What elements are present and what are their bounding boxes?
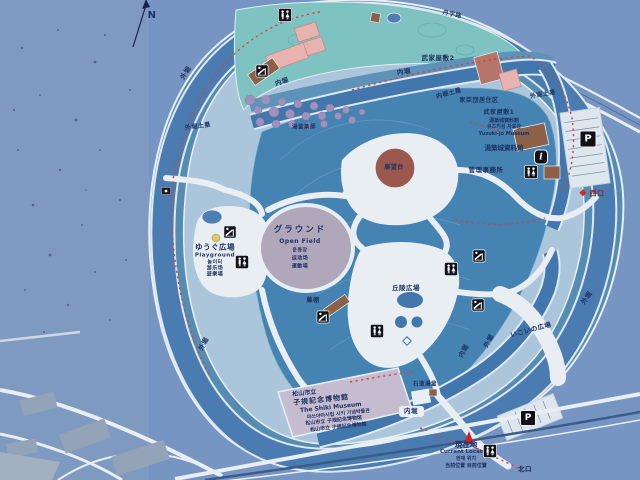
west-exit-label: 西口 (590, 191, 605, 198)
samurai-residence-1-label: 武家屋敷1 (484, 110, 515, 116)
observation-deck-label: 展望台 (384, 165, 404, 171)
playground-en: Playground (195, 253, 235, 259)
yuzuki-museum-en: Yuzuki-jo Museum (479, 131, 530, 137)
open-field-ja: グラウンド (274, 226, 327, 235)
slide-icon (473, 250, 486, 263)
gate-icon (161, 187, 171, 195)
toilet-icon (444, 262, 458, 276)
open-field-zh-tw: 運動場 (292, 265, 309, 270)
slide-icon (224, 226, 237, 239)
slide-icon (472, 299, 485, 312)
admin-office-label: 管理事務所 (469, 167, 504, 174)
samurai-residence-2-label: 武家屋敷2 (421, 55, 454, 62)
playground-zh-tw: 遊樂場 (207, 273, 224, 278)
toilet-icon (524, 165, 538, 179)
compass-n-label: N (148, 11, 157, 21)
yugama-yakushi-label: 湯釜薬師 (292, 125, 316, 131)
info-icon: i (534, 150, 548, 165)
yuzuki-museum-label-block: 湯築城資料館 유즈키성 자료관 Yuzuki-jo Museum 湯築城資料館 (479, 118, 530, 152)
inner-moat-label-south: 内堀 (404, 408, 418, 415)
vassals-quarter-label: 家臣団居住区 (459, 98, 498, 104)
yuzuki-museum-ja2: 湯築城資料館 (479, 144, 530, 152)
open-field-ko: 운동장 (292, 249, 307, 254)
hill-plaza-label: 丘陵広場 (392, 285, 420, 292)
toilet-icon (483, 444, 497, 458)
stone-yugama-label: 石造湯釜 (413, 382, 437, 388)
open-field-zh-cn: 运动场 (292, 257, 309, 262)
north-exit-label: 北口 (518, 466, 532, 473)
parking-icon: P (520, 410, 536, 426)
slide-icon (256, 65, 269, 78)
inner-moat-label-b: 内堀 (397, 68, 412, 76)
parking-letter: P (525, 413, 532, 423)
parking-letter: P (584, 134, 591, 145)
parking-icon: P (580, 131, 597, 148)
toilet-icon (370, 324, 384, 338)
slide-icon (317, 311, 330, 324)
playground-ja: ゆうぐ広場 (195, 243, 235, 251)
wisteria-trellis-label: 藤棚 (306, 298, 319, 304)
park-map-sign-photo: N 丹字路 外堀 外堀 外堀 外堀 外堀土塁 外堀土塁 内堀 内堀 内堀 内堀 … (0, 0, 640, 480)
open-field-en: Open Field (279, 239, 320, 245)
toilet-icon (278, 8, 292, 22)
shiki-museum-label-block: 松山市立 子規記念博物館 The Shiki Museum 마쓰야마시립 시키 … (292, 383, 372, 435)
info-letter: i (539, 152, 542, 162)
current-location-zh: 当前位置 目前位置 (440, 463, 492, 469)
toilet-icon (235, 255, 249, 269)
